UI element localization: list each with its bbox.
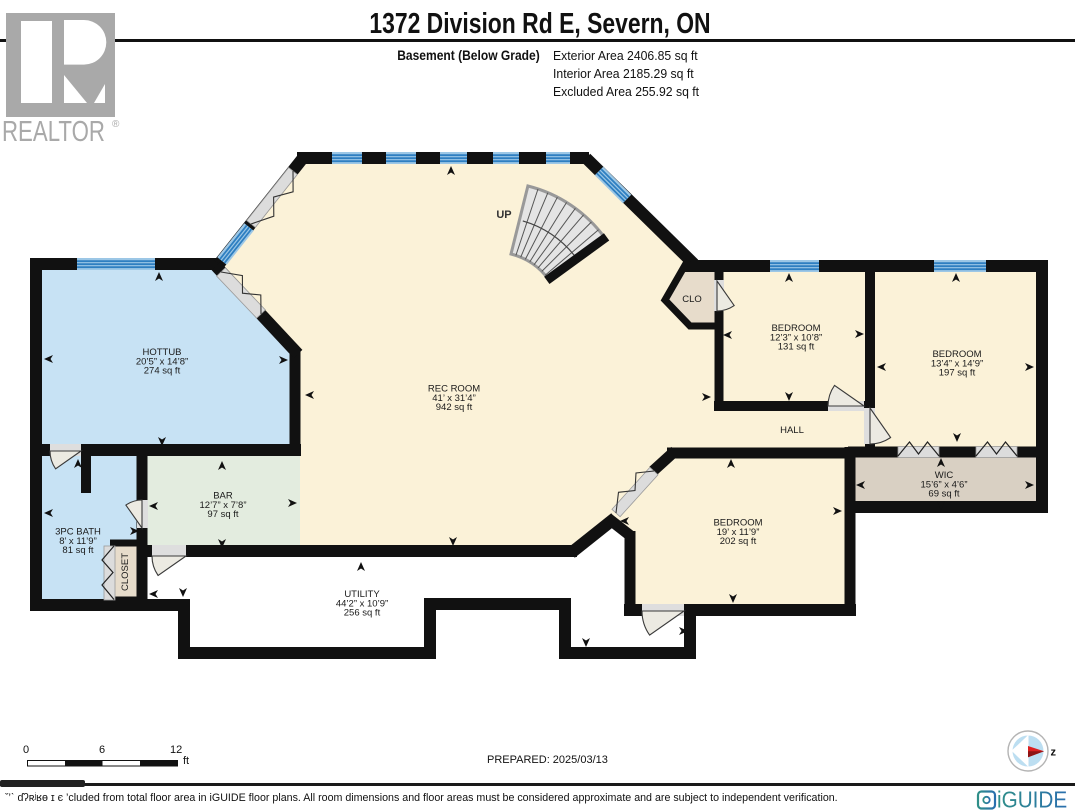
svg-text:z: z	[1051, 747, 1057, 759]
svg-text:UP: UP	[496, 209, 511, 221]
svg-text:CLO: CLO	[682, 294, 702, 305]
svg-text:BEDROOM19’ x 11’9”202 sq ft: BEDROOM19’ x 11’9”202 sq ft	[713, 518, 762, 548]
svg-text:iGUIDE: iGUIDE	[997, 788, 1067, 810]
svg-text:HALL: HALL	[780, 425, 804, 436]
